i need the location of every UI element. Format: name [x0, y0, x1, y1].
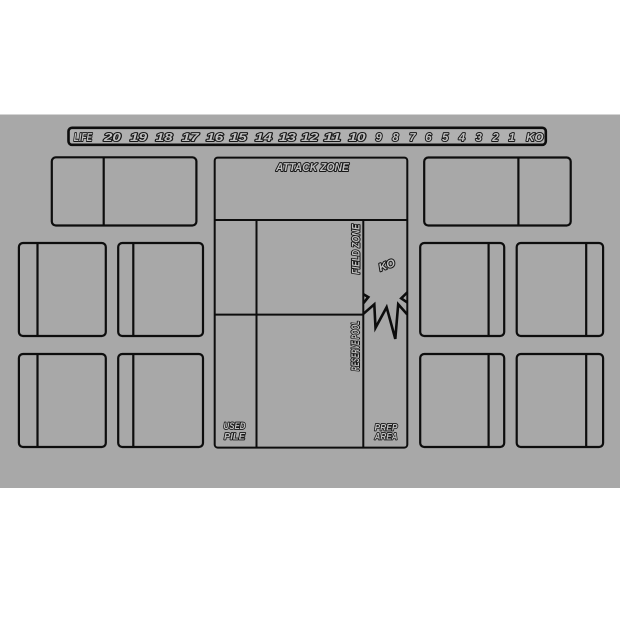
svg-text:5: 5	[442, 132, 449, 144]
svg-text:16: 16	[206, 132, 224, 144]
svg-text:19: 19	[130, 132, 148, 144]
svg-text:12: 12	[301, 132, 319, 144]
svg-text:14: 14	[255, 132, 273, 144]
svg-text:2: 2	[491, 132, 499, 144]
svg-text:ATTACK ZONE: ATTACK ZONE	[275, 162, 349, 174]
svg-text:9: 9	[375, 132, 382, 144]
svg-text:6: 6	[425, 132, 432, 144]
svg-text:11: 11	[324, 132, 341, 144]
svg-text:AREA: AREA	[374, 432, 398, 443]
svg-text:17: 17	[182, 132, 200, 144]
svg-text:RESERVE POOL: RESERVE POOL	[350, 321, 362, 371]
svg-text:4: 4	[458, 132, 466, 144]
svg-text:KO: KO	[526, 132, 543, 144]
svg-text:10: 10	[349, 132, 367, 144]
svg-text:8: 8	[392, 132, 399, 144]
svg-text:15: 15	[230, 132, 248, 144]
svg-text:18: 18	[156, 132, 174, 144]
svg-text:13: 13	[279, 132, 297, 144]
svg-text:3: 3	[476, 132, 483, 144]
svg-text:FIELD ZONE: FIELD ZONE	[350, 224, 362, 275]
svg-text:PILE: PILE	[224, 431, 246, 442]
svg-text:20: 20	[103, 132, 122, 144]
svg-text:1: 1	[509, 132, 515, 144]
svg-text:7: 7	[409, 132, 416, 144]
svg-text:LIFE: LIFE	[74, 132, 93, 144]
